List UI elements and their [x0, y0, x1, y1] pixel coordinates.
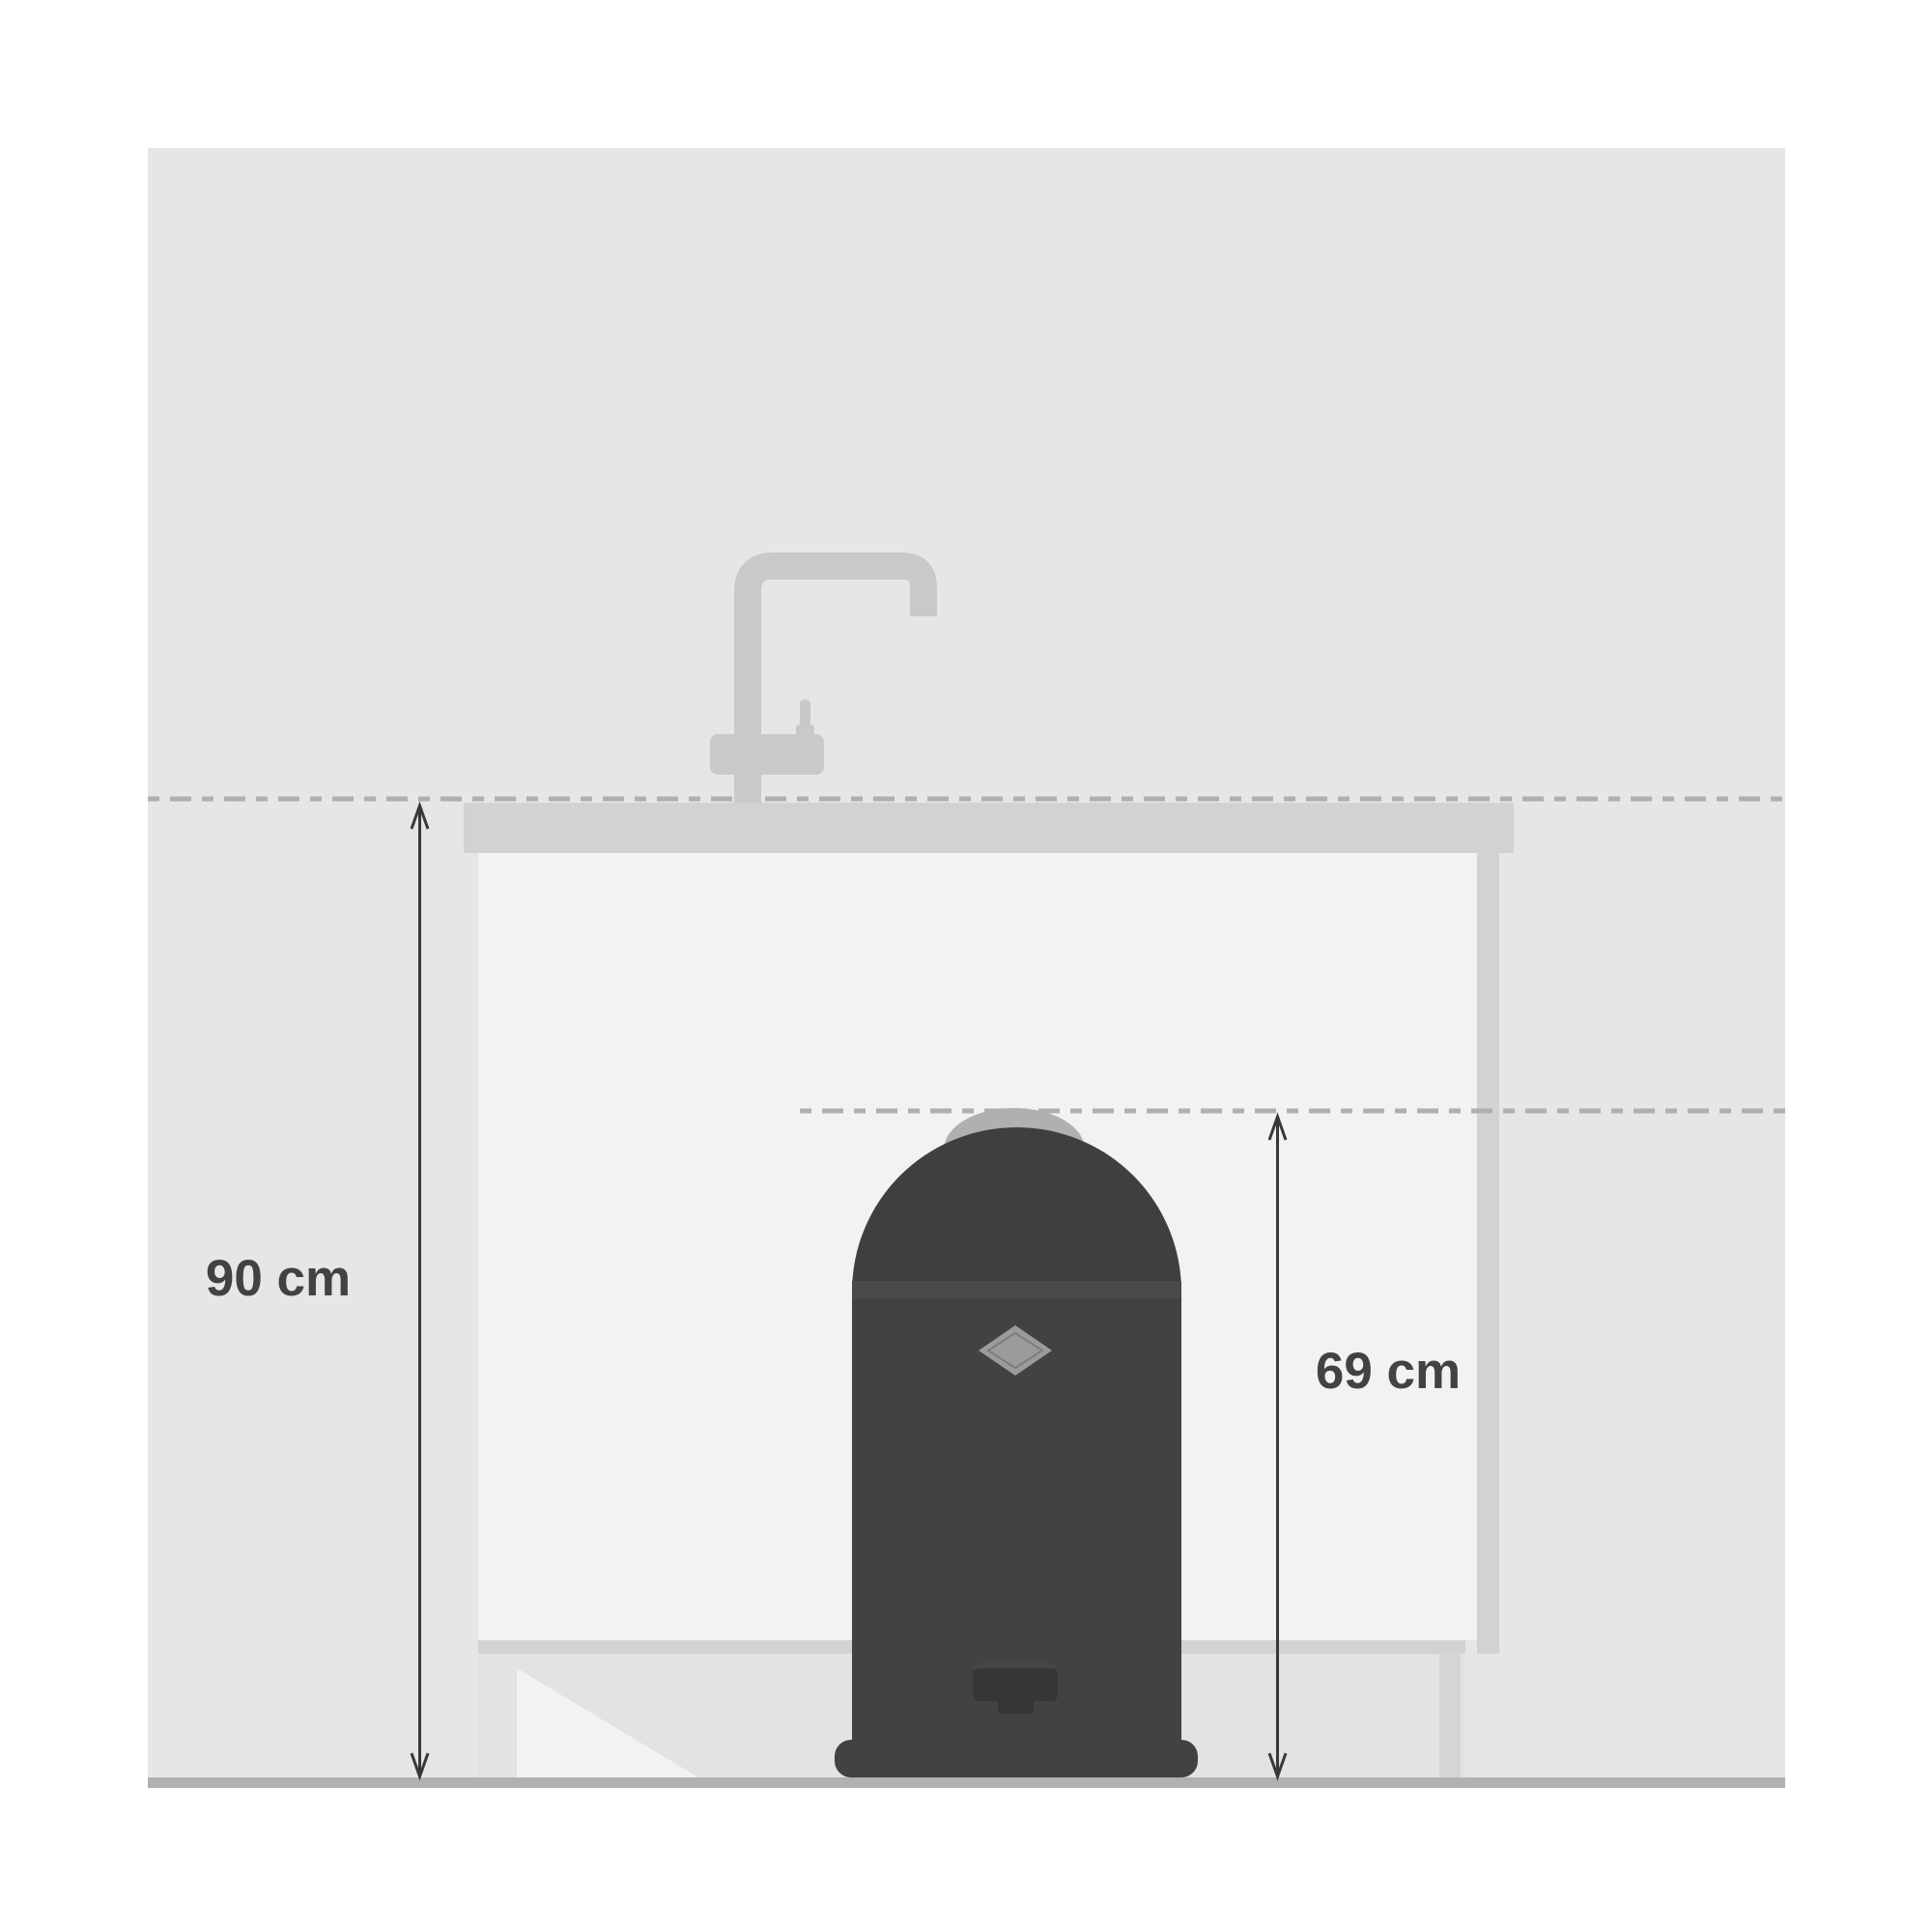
- countertop: [464, 803, 1514, 853]
- pedal-waste-bin: [835, 1108, 1198, 1777]
- bin-height-label: 69 cm: [1316, 1343, 1461, 1400]
- bin-base: [835, 1740, 1198, 1777]
- kitchen-dimension-diagram: 90 cm 69 cm: [0, 0, 1932, 1932]
- faucet-base-block: [710, 734, 824, 775]
- counter-height-label: 90 cm: [206, 1250, 351, 1307]
- bin-pedal-stem: [998, 1696, 1034, 1714]
- bin-pedal-pad: [973, 1668, 1058, 1701]
- bin-lid-seam: [852, 1281, 1181, 1298]
- kitchen-floor: [148, 1777, 1785, 1788]
- cabinet-side-panel: [1477, 852, 1499, 1654]
- diagram-svg: 90 cm 69 cm: [0, 0, 1932, 1932]
- plinth-side-panel: [1439, 1654, 1461, 1777]
